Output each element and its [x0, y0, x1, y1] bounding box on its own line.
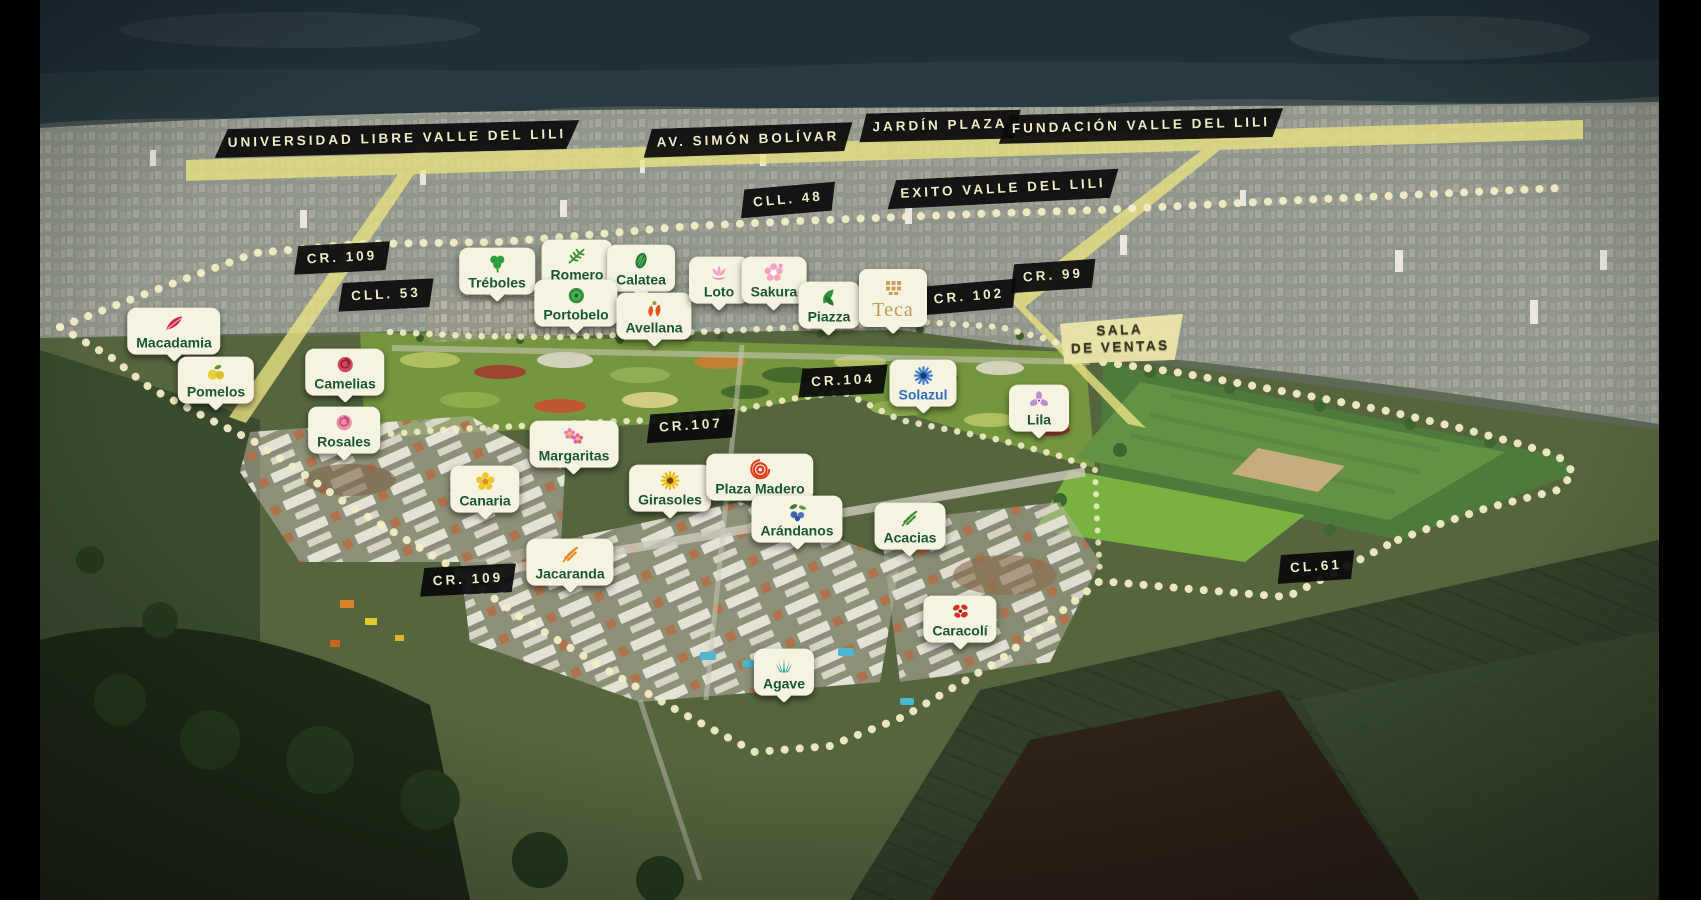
- label-cr-109-norte: CR. 109: [294, 241, 390, 275]
- project-name: Arándanos: [760, 524, 833, 539]
- project-name: Jacaranda: [535, 567, 604, 582]
- project-marker-treboles[interactable]: Tréboles: [459, 248, 535, 295]
- clover-icon: [486, 253, 508, 275]
- label-jardin-plaza: JARDÍN PLAZA: [859, 109, 1020, 142]
- teca-emblem-icon: [882, 277, 904, 299]
- label-text: AV. SIMÓN BOLÍVAR: [656, 128, 839, 151]
- project-marker-piazza[interactable]: Piazza: [799, 282, 860, 329]
- project-marker-margaritas[interactable]: Margaritas: [530, 421, 619, 468]
- project-name: Calatea: [616, 273, 666, 288]
- project-marker-sakura[interactable]: Sakura: [742, 257, 807, 304]
- lilac-flower-icon: [1028, 390, 1050, 412]
- label-text: SALA DE VENTAS: [1070, 320, 1170, 357]
- project-marker-acacias[interactable]: Acacias: [875, 503, 946, 550]
- label-text: CR. 102: [933, 286, 1005, 309]
- project-marker-macadamia[interactable]: Macadamia: [127, 308, 220, 355]
- project-name: Piazza: [808, 310, 851, 325]
- project-name: Acacias: [884, 531, 937, 546]
- project-marker-agave[interactable]: Agave: [754, 649, 814, 696]
- project-name: Lila: [1027, 413, 1051, 428]
- daisies-icon: [563, 426, 585, 448]
- label-text: EXITO VALLE DEL LILI: [900, 175, 1106, 203]
- label-text: CR. 109: [306, 248, 377, 269]
- project-marker-solazul[interactable]: Solazul: [889, 360, 956, 407]
- label-text: FUNDACIÓN VALLE DEL LILI: [1012, 114, 1271, 138]
- project-name: Pomelos: [187, 385, 245, 400]
- jacaranda-leaf-icon: [559, 544, 581, 566]
- blueberries-icon: [786, 501, 808, 523]
- project-name: Sakura: [751, 285, 798, 300]
- label-cll-53: CLL. 53: [338, 278, 433, 312]
- project-marker-caracoli[interactable]: Caracolí: [923, 596, 996, 643]
- masterplan-map: UNIVERSIDAD LIBRE VALLE DEL LILIAV. SIMÓ…: [0, 0, 1701, 900]
- label-cr-99: CR. 99: [1011, 259, 1096, 294]
- label-text: CR.107: [659, 415, 724, 436]
- camellia-rose-icon: [334, 354, 356, 376]
- project-name: Teca: [872, 300, 913, 321]
- project-name: Plaza Madero: [715, 482, 804, 497]
- project-name: Avellana: [625, 321, 682, 336]
- hazelnut-icon: [643, 298, 665, 320]
- label-text: CLL. 48: [753, 189, 824, 212]
- caracoli-flower-icon: [949, 601, 971, 623]
- agave-icon: [773, 654, 795, 676]
- project-name: Agave: [763, 677, 805, 692]
- yellow-flower-icon: [474, 471, 496, 493]
- project-name: Girasoles: [638, 493, 702, 508]
- project-marker-lila[interactable]: Lila: [1009, 385, 1069, 432]
- portobello-icon: [565, 285, 587, 307]
- project-marker-loto[interactable]: Loto: [689, 257, 749, 304]
- project-marker-camelias[interactable]: Camelias: [305, 349, 384, 396]
- label-cr-104: CR.104: [798, 364, 887, 398]
- project-name: Camelias: [314, 377, 375, 392]
- label-text: CL.61: [1290, 557, 1343, 577]
- label-cl-61: CL.61: [1278, 550, 1355, 584]
- project-marker-jacaranda[interactable]: Jacaranda: [526, 539, 613, 586]
- label-text: CR. 109: [432, 570, 503, 591]
- macadamia-feather-icon: [163, 313, 185, 335]
- project-marker-avellana[interactable]: Avellana: [616, 293, 691, 340]
- project-name: Canaria: [459, 494, 510, 509]
- project-name: Loto: [704, 285, 734, 300]
- project-name: Tréboles: [468, 276, 526, 291]
- leaf-swirl-icon: [818, 287, 840, 309]
- calathea-leaf-icon: [630, 250, 652, 272]
- spiral-rings-icon: [749, 459, 771, 481]
- label-text: UNIVERSIDAD LIBRE VALLE DEL LILI: [228, 126, 567, 152]
- label-text: CR. 99: [1022, 265, 1083, 286]
- project-name: Macadamia: [136, 336, 211, 351]
- project-marker-canaria[interactable]: Canaria: [450, 466, 519, 513]
- pomelo-icon: [205, 362, 227, 384]
- rosemary-sprig-icon: [566, 245, 588, 267]
- acacia-leaves-icon: [899, 508, 921, 530]
- project-marker-plaza-madero[interactable]: Plaza Madero: [706, 454, 813, 501]
- project-marker-portobelo[interactable]: Portobelo: [534, 280, 617, 327]
- project-marker-arandanos[interactable]: Arándanos: [751, 496, 842, 543]
- project-name: Solazul: [898, 388, 947, 403]
- label-text: CLL. 53: [351, 285, 422, 306]
- project-name: Margaritas: [539, 449, 610, 464]
- label-text: JARDÍN PLAZA: [872, 116, 1007, 136]
- project-marker-calatea[interactable]: Calatea: [607, 245, 675, 292]
- project-name: Caracolí: [932, 624, 987, 639]
- cherry-blossom-icon: [763, 262, 785, 284]
- project-marker-rosales[interactable]: Rosales: [308, 407, 380, 454]
- rose-icon: [333, 412, 355, 434]
- project-name: Portobelo: [543, 308, 608, 323]
- blue-flower-icon: [912, 365, 934, 387]
- sunflower-icon: [659, 470, 681, 492]
- project-name: Rosales: [317, 435, 371, 450]
- project-marker-pomelos[interactable]: Pomelos: [178, 357, 254, 404]
- label-text: CR.104: [811, 371, 876, 391]
- lotus-icon: [708, 262, 730, 284]
- letterbox-bar-left: [0, 0, 40, 900]
- project-marker-girasoles[interactable]: Girasoles: [629, 465, 711, 512]
- label-cr-109-sur: CR. 109: [420, 563, 516, 597]
- project-marker-teca[interactable]: Teca: [859, 269, 927, 327]
- letterbox-bar-right: [1659, 0, 1701, 900]
